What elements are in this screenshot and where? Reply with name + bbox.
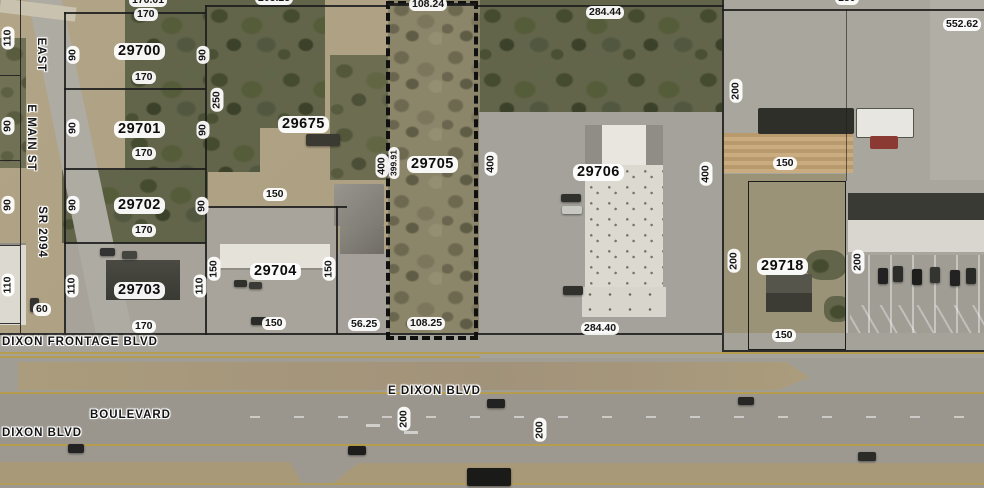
dimension-label-200: 200 <box>398 407 411 431</box>
dimension-label-284-44: 284.44 <box>586 6 624 19</box>
parcel-label-29704: 29704 <box>250 263 301 280</box>
dimension-label-150: 150 <box>773 157 797 170</box>
dimension-label-400: 400 <box>485 152 498 176</box>
parcel-label-29700: 29700 <box>114 43 165 60</box>
dimension-label-150: 150 <box>323 257 336 281</box>
dimension-label-108-25: 108.25 <box>407 317 445 330</box>
dimension-label-90: 90 <box>196 197 209 215</box>
dimension-label-90: 90 <box>2 196 15 214</box>
parcel-label-29675: 29675 <box>278 116 329 133</box>
road-label-e-main-st: E MAIN ST <box>25 104 37 171</box>
road-label-sr-2094: SR 2094 <box>36 206 48 258</box>
dimension-label-400: 400 <box>376 154 389 178</box>
dimension-label-170: 170 <box>132 147 156 160</box>
road-label-e-dixon-blvd: E DIXON BLVD <box>388 385 481 397</box>
dimension-label-150: 150 <box>263 188 287 201</box>
dimension-label-110: 110 <box>2 27 15 50</box>
dimension-label-200: 200 <box>730 79 743 103</box>
dimension-label-90: 90 <box>67 46 80 64</box>
dimension-label-170: 170 <box>132 71 156 84</box>
parcel-label-29706: 29706 <box>573 164 624 181</box>
dimension-label-56-25: 56.25 <box>348 318 380 331</box>
dimension-label-200: 200 <box>534 418 547 442</box>
dimension-label-200: 200 <box>852 250 865 274</box>
dimension-label-170-01: 170.01 <box>129 0 167 7</box>
dimension-label-552-62: 552.62 <box>943 18 981 31</box>
dimension-label-90: 90 <box>2 117 15 135</box>
parcel-label-29718: 29718 <box>757 258 808 275</box>
dimension-label-200: 200 <box>728 249 741 273</box>
dimension-label-205-25: 205.25 <box>255 0 293 5</box>
dimension-label-110: 110 <box>2 274 15 297</box>
parcel-label-29701: 29701 <box>114 121 165 138</box>
dimension-label-110: 110 <box>194 275 207 298</box>
dimension-label-170: 170 <box>132 224 156 237</box>
dimension-label-150: 150 <box>208 257 221 281</box>
dimension-label-90: 90 <box>67 196 80 214</box>
dimension-label-90: 90 <box>197 46 210 64</box>
map-canvas[interactable]: 170.011702970017029701170297021702970317… <box>0 0 984 488</box>
parcel-label-29705: 29705 <box>407 156 458 173</box>
dimension-label-150: 150 <box>835 0 859 5</box>
dimension-label-150: 150 <box>262 317 286 330</box>
dimension-label-108-24: 108.24 <box>409 0 447 11</box>
dimension-label-90: 90 <box>197 121 210 139</box>
road-label-dixon-frontage-blvd: DIXON FRONTAGE BLVD <box>2 336 158 348</box>
parcel-label-29702: 29702 <box>114 197 165 214</box>
dimension-label-110: 110 <box>66 275 79 298</box>
label-layer: 170.011702970017029701170297021702970317… <box>0 0 984 488</box>
dimension-label-170: 170 <box>132 320 156 333</box>
dimension-label-90: 90 <box>67 119 80 137</box>
road-label-east: EAST <box>35 38 47 73</box>
dimension-label-284-40: 284.40 <box>581 322 619 335</box>
dimension-label-400: 400 <box>700 162 713 186</box>
dimension-label-150: 150 <box>772 329 796 342</box>
dimension-label-250: 250 <box>211 88 224 112</box>
road-label-dixon-blvd: DIXON BLVD <box>2 427 82 439</box>
dimension-label-399-91: 399.91 <box>389 147 400 179</box>
dimension-label-170: 170 <box>134 8 158 21</box>
dimension-label-60: 60 <box>33 303 51 316</box>
parcel-label-29703: 29703 <box>114 282 165 299</box>
road-label-boulevard: BOULEVARD <box>90 409 171 421</box>
